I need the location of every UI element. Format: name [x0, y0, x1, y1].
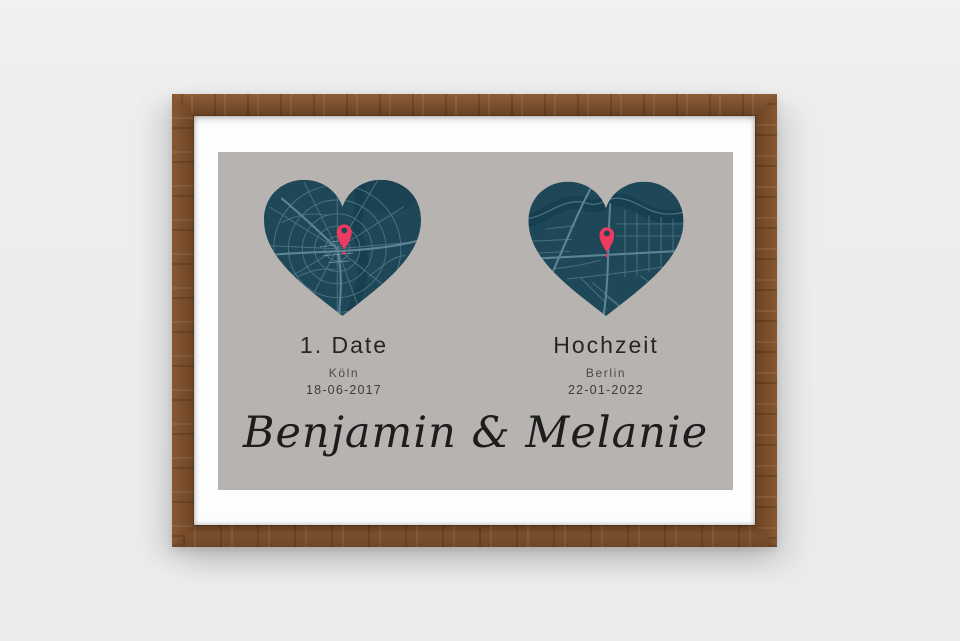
koeln-map-image: [255, 172, 430, 322]
event-right-labels: Hochzeit Berlin 22-01-2022: [496, 332, 716, 397]
picture-frame: 1. Date Köln 18-06-2017 Hochzeit Berlin …: [172, 94, 777, 547]
frame-edge-left: [172, 94, 194, 547]
frame-edge-top: [172, 94, 777, 116]
event-right-date: 22-01-2022: [496, 383, 716, 397]
berlin-map-image: [520, 174, 692, 322]
event-left-city: Köln: [234, 366, 454, 380]
event-right-title: Hochzeit: [496, 332, 716, 359]
event-left-date: 18-06-2017: [234, 383, 454, 397]
frame-edge-right: [755, 94, 777, 547]
event-left-title: 1. Date: [234, 332, 454, 359]
event-right-city: Berlin: [496, 366, 716, 380]
heart-map-berlin: [520, 174, 692, 327]
poster-print: 1. Date Köln 18-06-2017 Hochzeit Berlin …: [218, 152, 733, 490]
couple-names: Benjamin & Melanie: [218, 408, 733, 458]
heart-map-koeln: [255, 172, 430, 327]
frame-mat: 1. Date Köln 18-06-2017 Hochzeit Berlin …: [194, 116, 755, 525]
event-left-labels: 1. Date Köln 18-06-2017: [234, 332, 454, 397]
frame-edge-bottom: [172, 525, 777, 547]
mockup-scene: 1. Date Köln 18-06-2017 Hochzeit Berlin …: [0, 0, 960, 641]
